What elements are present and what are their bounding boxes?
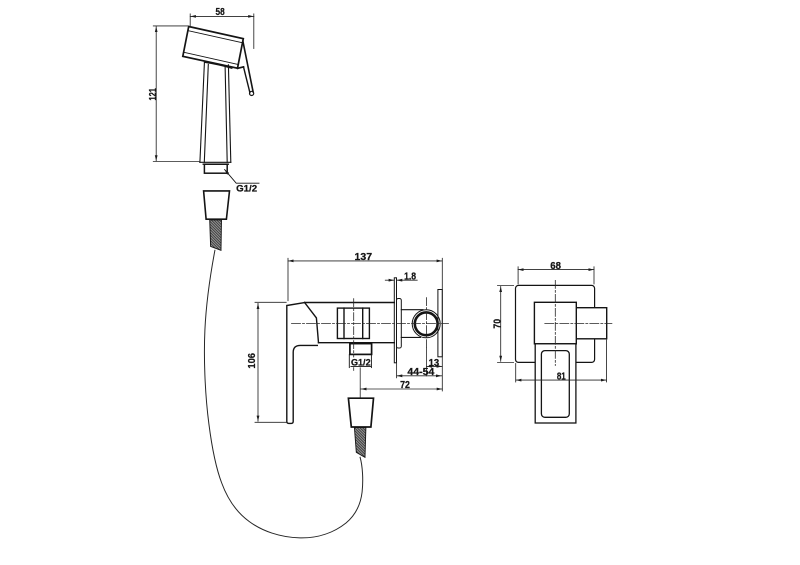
svg-text:106: 106	[247, 352, 258, 368]
svg-text:1.8: 1.8	[404, 271, 416, 282]
svg-text:G1/2: G1/2	[351, 357, 371, 367]
svg-text:72: 72	[400, 380, 410, 391]
svg-text:44-54: 44-54	[407, 367, 435, 378]
svg-text:70: 70	[492, 318, 503, 328]
svg-text:58: 58	[216, 7, 226, 18]
svg-text:81: 81	[557, 372, 566, 383]
svg-text:137: 137	[355, 252, 373, 263]
svg-text:G1/2: G1/2	[236, 182, 257, 193]
svg-text:121: 121	[148, 88, 159, 101]
svg-text:68: 68	[550, 261, 561, 272]
